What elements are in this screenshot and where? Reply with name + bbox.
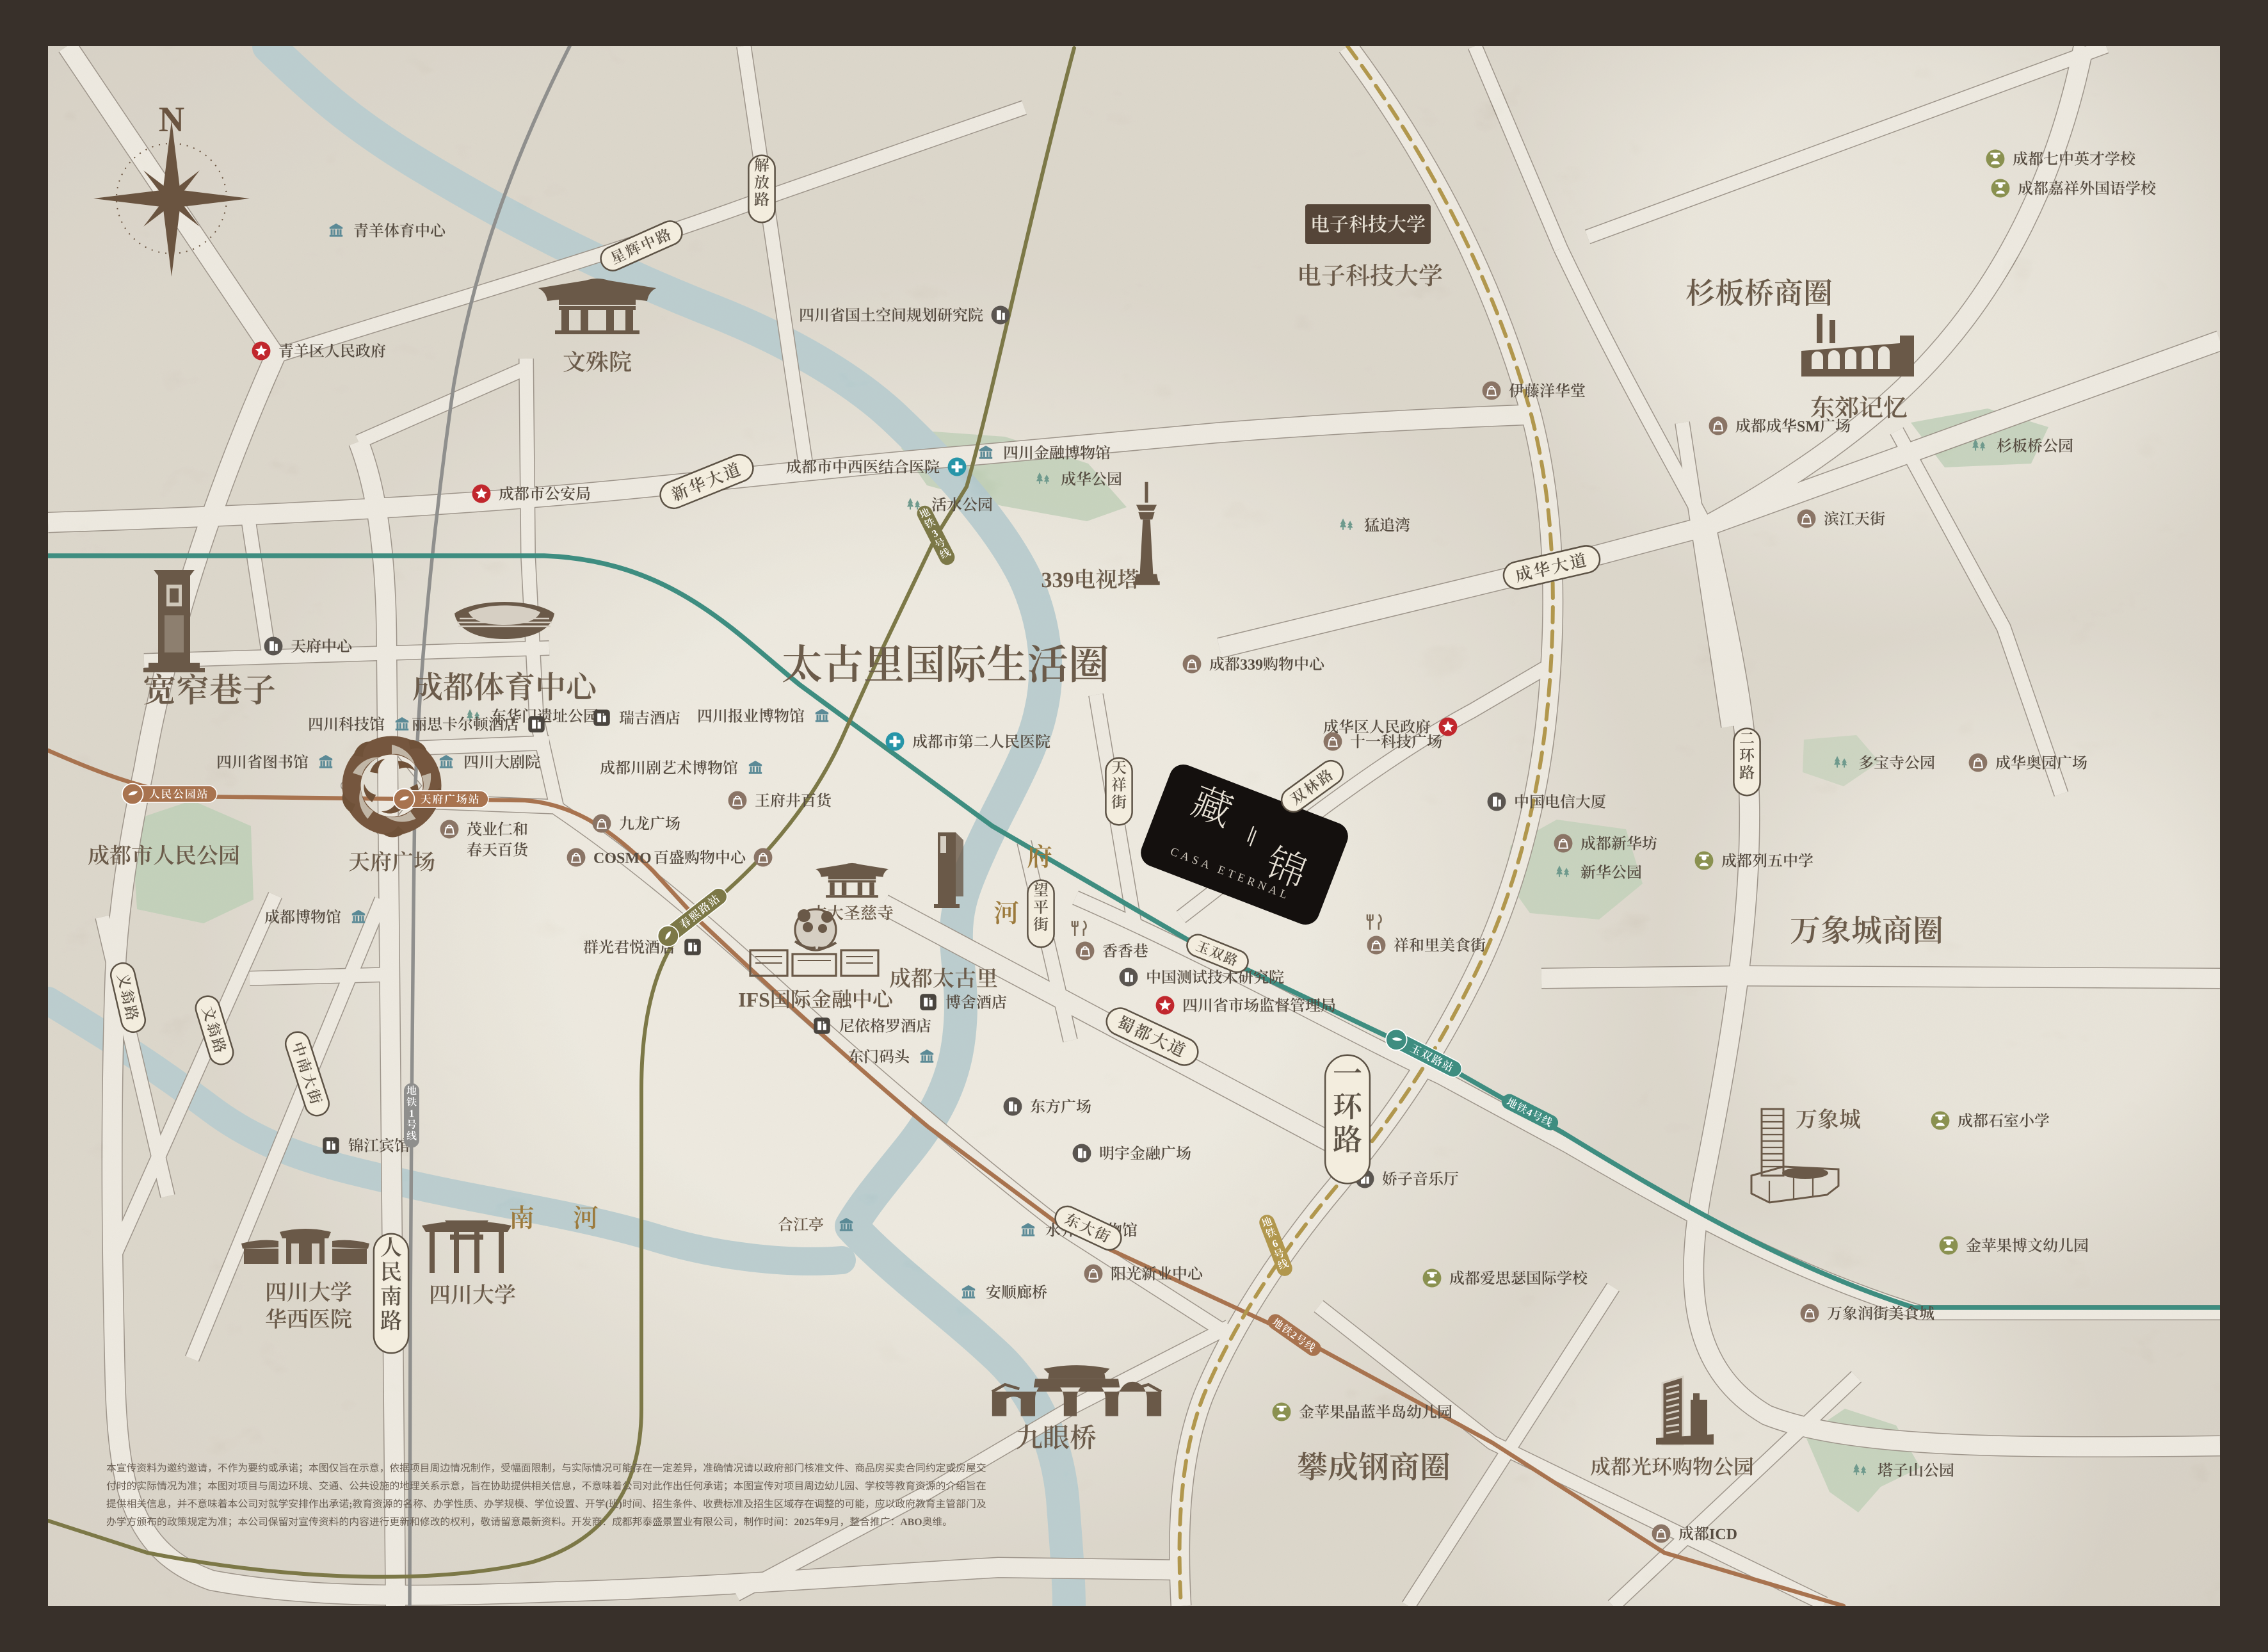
svg-text:N: N	[159, 100, 184, 140]
